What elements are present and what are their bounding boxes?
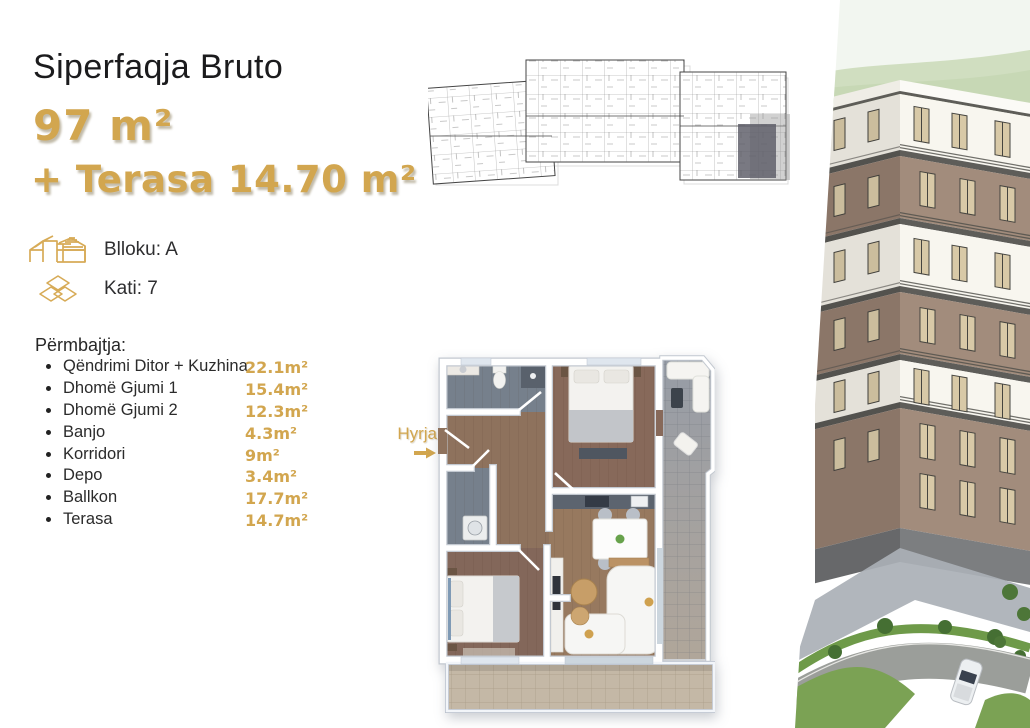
apartment-floorplan xyxy=(437,352,715,727)
facade-right xyxy=(900,80,1030,585)
room-area: 3.4m² xyxy=(245,467,297,486)
room-label: Dhomë Gjumi 2 xyxy=(63,401,178,419)
page-title: Siperfaqja Bruto xyxy=(33,48,283,87)
room-label: Dhomë Gjumi 1 xyxy=(63,379,178,397)
floor-row: Kati: 7 xyxy=(26,274,158,304)
room-area: 22.1m² xyxy=(245,358,308,377)
block-row: Blloku: A xyxy=(26,234,178,266)
room-label: Depo xyxy=(63,466,102,484)
building-render xyxy=(795,0,1030,728)
gross-area-value: 97 m² xyxy=(33,101,173,150)
room-label: Qëndrimi Ditor + Kuzhina xyxy=(63,357,248,375)
room-label: Terasa xyxy=(63,510,113,528)
list-item: Ballkon17.7m² xyxy=(44,488,374,510)
room-label: Korridori xyxy=(63,445,125,463)
building-blocks-icon xyxy=(26,234,90,266)
brochure-page: Siperfaqja Bruto 97 m² + Terasa 14.70 m²… xyxy=(0,0,1030,728)
list-item: Dhomë Gjumi 212.3m² xyxy=(44,401,374,423)
room-label: Ballkon xyxy=(63,488,117,506)
contents-heading: Përmbajtja: xyxy=(35,335,126,356)
arrow-right-icon xyxy=(413,446,437,465)
stacked-tiles-icon xyxy=(26,274,90,304)
highlighted-unit xyxy=(738,124,776,178)
storage-fixtures xyxy=(463,516,487,540)
mini-plan-wings xyxy=(428,60,786,184)
kitchen-counter xyxy=(551,494,659,509)
list-item: Depo3.4m² xyxy=(44,466,374,488)
terrace-area xyxy=(447,664,714,712)
room-area: 4.3m² xyxy=(245,424,297,443)
room-list: Qëndrimi Ditor + Kuzhina22.1m² Dhomë Gju… xyxy=(44,357,374,532)
room-area: 12.3m² xyxy=(245,402,308,421)
room-area: 17.7m² xyxy=(245,489,308,508)
room-area: 9m² xyxy=(245,446,280,465)
block-label: Blloku: A xyxy=(104,239,178,261)
tv-sideboard xyxy=(551,558,563,652)
building-level-plan xyxy=(428,56,790,193)
terrace-area-value: + Terasa 14.70 m² xyxy=(31,158,417,201)
list-item: Terasa14.7m² xyxy=(44,510,374,532)
entrance-label: Hyrja xyxy=(383,424,437,444)
list-item: Banjo4.3m² xyxy=(44,423,374,445)
room-area: 15.4m² xyxy=(245,380,308,399)
list-item: Dhomë Gjumi 115.4m² xyxy=(44,379,374,401)
floor-label: Kati: 7 xyxy=(104,278,158,300)
list-item: Qëndrimi Ditor + Kuzhina22.1m² xyxy=(44,357,374,379)
facade-left xyxy=(815,80,900,583)
room-label: Banjo xyxy=(63,423,105,441)
room-area: 14.7m² xyxy=(245,511,308,530)
list-item: Korridori9m² xyxy=(44,445,374,467)
